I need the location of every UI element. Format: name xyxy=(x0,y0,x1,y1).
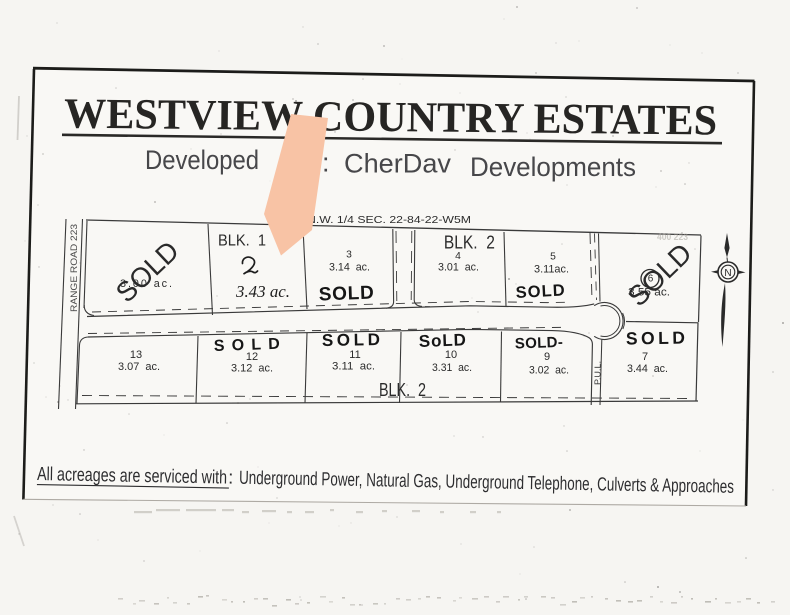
svg-text:N: N xyxy=(724,268,731,279)
svg-text:Developments: Developments xyxy=(470,152,636,182)
svg-text:3.31 ac.: 3.31 ac. xyxy=(432,362,472,374)
svg-text:SoLD: SoLD xyxy=(418,330,466,351)
svg-text:SOLD-: SOLD- xyxy=(515,334,564,353)
svg-text:Developed: Developed xyxy=(145,145,259,175)
svg-text:3.02 ac.: 3.02 ac. xyxy=(529,365,569,377)
svg-text:3.01 ac.: 3.01 ac. xyxy=(438,261,479,273)
svg-text:13: 13 xyxy=(130,349,142,361)
svg-text:RANGE ROAD 223: RANGE ROAD 223 xyxy=(69,224,79,312)
svg-text::: : xyxy=(228,468,234,489)
svg-text:CherDav: CherDav xyxy=(344,149,451,179)
svg-text:3.44 ac.: 3.44 ac. xyxy=(627,363,668,375)
svg-text:5: 5 xyxy=(550,252,556,263)
svg-text:3.43 ac.: 3.43 ac. xyxy=(235,282,290,301)
svg-text:3.12 ac.: 3.12 ac. xyxy=(231,363,273,375)
svg-text:3.14 ac.: 3.14 ac. xyxy=(329,262,370,274)
svg-text:3.07 ac.: 3.07 ac. xyxy=(118,361,160,373)
svg-text:P.U.L.: P.U.L. xyxy=(593,361,603,385)
svg-text:BLK. 1: BLK. 1 xyxy=(218,232,266,249)
svg-text:3.11ac.: 3.11ac. xyxy=(534,264,569,276)
svg-text:N.W. 1/4 SEC. 22-84-22-W5M: N.W. 1/4 SEC. 22-84-22-W5M xyxy=(307,215,471,226)
svg-text:3.11 ac.: 3.11 ac. xyxy=(332,361,375,373)
svg-text:BLK. 2: BLK. 2 xyxy=(379,379,426,400)
svg-text:9: 9 xyxy=(544,351,550,363)
svg-text:3: 3 xyxy=(346,249,352,260)
svg-text:SOLD: SOLD xyxy=(318,283,374,306)
svg-text:BLK. 2: BLK. 2 xyxy=(444,233,495,253)
svg-text:7: 7 xyxy=(642,351,648,363)
svg-text:10: 10 xyxy=(445,349,457,361)
svg-text:11: 11 xyxy=(349,349,360,361)
